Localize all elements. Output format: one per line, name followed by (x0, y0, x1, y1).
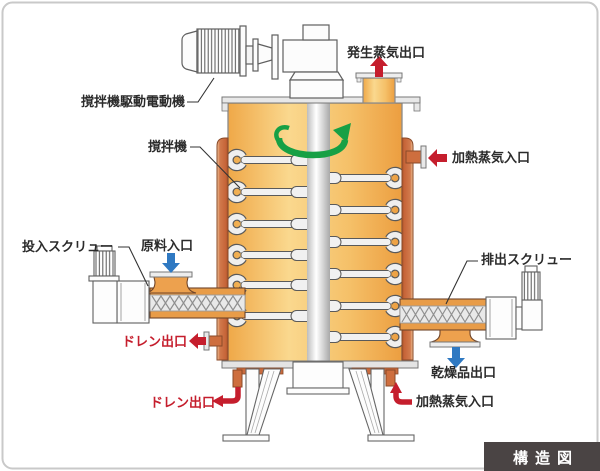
label-material-in: 原料入口 (141, 238, 193, 253)
center-pedestal-flange (287, 388, 349, 394)
discharge-chute-flange (430, 342, 480, 347)
motor-flange (240, 26, 246, 76)
label-agitator: 撹拌機 (148, 139, 187, 154)
gearbox-flange (272, 35, 278, 79)
leg-foot-left (223, 435, 269, 441)
label-drain-mid: ドレン出口 (122, 334, 187, 349)
coupling-cone (258, 44, 272, 64)
heating-jacket-left (217, 138, 228, 360)
feed-motor-flange (89, 276, 119, 281)
label-product-out: 乾燥品出口 (431, 365, 496, 380)
structure-diagram: 撹拌機駆動電動機 撹拌機 発生蒸気出口 加熱蒸気入口 投入スクリュー 原料入口 … (0, 0, 600, 471)
label-steam-in-bottom: 加熱蒸気入口 (415, 394, 494, 409)
feed-motor-body (93, 281, 117, 323)
gearbox-body (283, 40, 337, 72)
feed-motor-fins (94, 251, 115, 276)
motor-end-cap (182, 31, 197, 72)
label-steam-in-side: 加熱蒸気入口 (451, 150, 530, 165)
feed-screw-drive-drum (117, 281, 149, 323)
lid-tab-left (222, 103, 228, 111)
dryer-vessel (217, 97, 420, 374)
gearbox-base (290, 72, 343, 80)
title-badge: 構造図 (484, 442, 600, 471)
discharge-coupling (516, 307, 522, 329)
discharge-motor-fins (522, 272, 540, 300)
agitator-shaft (307, 103, 330, 365)
badge-text: 構造図 (513, 449, 579, 467)
label-steam-out: 発生蒸気出口 (346, 45, 425, 60)
label-discharge-screw: 排出スクリュー (481, 252, 572, 267)
gearbox-pedestal (290, 80, 343, 98)
leg-foot-right (368, 435, 414, 441)
structure-diagram-page: 撹拌機駆動電動機 撹拌機 発生蒸気出口 加熱蒸気入口 投入スクリュー 原料入口 … (0, 0, 600, 471)
motor-fins (197, 29, 240, 73)
label-motor: 撹拌機駆動電動機 (81, 94, 185, 109)
coupling-flange (253, 39, 258, 71)
steam-outlet-nozzle (356, 73, 402, 103)
lid-tab-right (414, 103, 420, 111)
center-pedestal (293, 362, 343, 388)
label-feed-screw: 投入スクリュー (22, 239, 113, 254)
label-drain-bottom: ドレン出口 (150, 395, 215, 410)
gearbox-top-box (303, 25, 329, 40)
discharge-motor-body (522, 300, 542, 330)
motor-shaft-hub (246, 46, 253, 64)
